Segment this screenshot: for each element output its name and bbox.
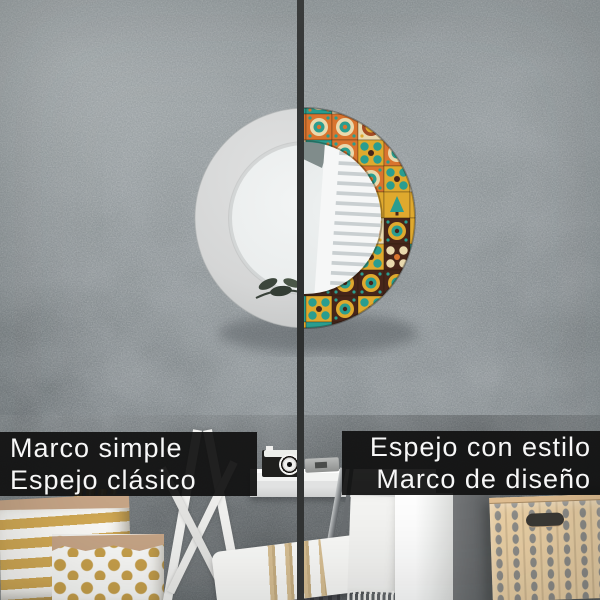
label-right-line2: Marco de diseño — [376, 464, 591, 494]
label-right-line1: Espejo con estilo — [370, 432, 591, 462]
label-bar-left-top: Marco simple — [0, 432, 257, 464]
product-photo: Marco simple Espejo clásico Espejo con e… — [0, 0, 600, 600]
label-left-line1: Marco simple — [10, 433, 183, 463]
divider-line — [297, 0, 304, 600]
label-bar-right-bottom: Marco de diseño — [342, 463, 600, 495]
label-left-line2: Espejo clásico — [10, 465, 197, 495]
label-bar-left-bottom: Espejo clásico — [0, 464, 257, 496]
label-bar-right-top: Espejo con estilo — [342, 431, 600, 463]
